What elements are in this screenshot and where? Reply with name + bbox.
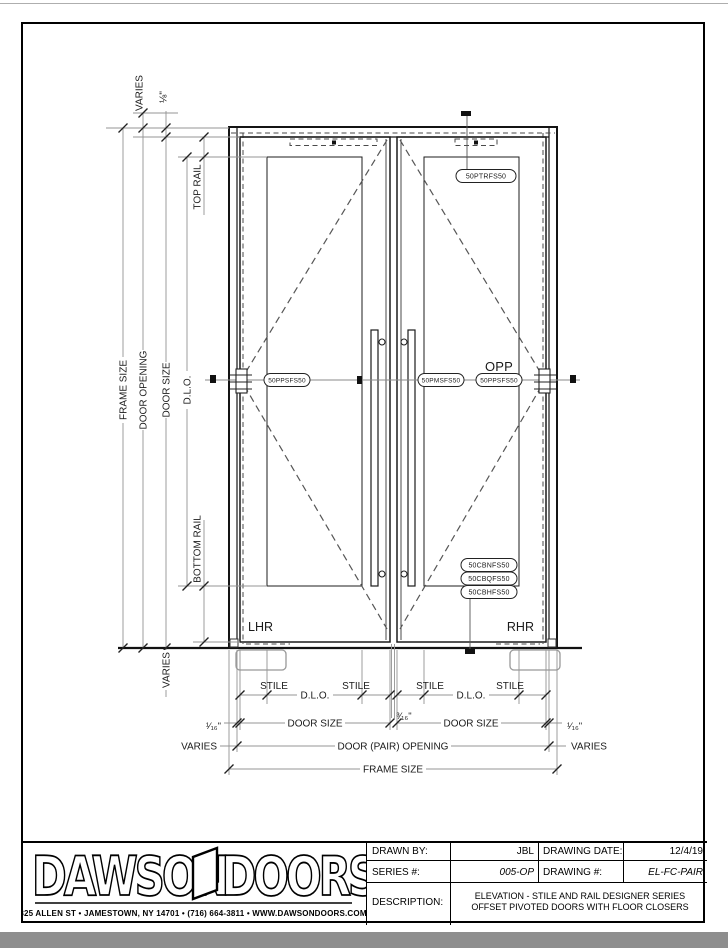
dim-door-size-left: DOOR SIZE — [287, 719, 342, 730]
dim-varies-top: VARIES — [135, 75, 146, 111]
part-top-rail: 50PTRFS50 — [466, 174, 506, 181]
dim-stile-4: STILE — [496, 681, 524, 692]
drawing-date-value: 12/4/19 — [629, 846, 703, 857]
opp-marker: OPP — [485, 359, 513, 374]
company-logo: DAWSON DOORS 825 ALLEN ST • JAMESTOWN, N… — [21, 843, 366, 927]
titleblock-row-rule — [366, 860, 707, 861]
dim-stile-2: STILE — [342, 681, 370, 692]
dim-floor-varies: VARIES — [162, 652, 173, 688]
company-address: 825 ALLEN ST • JAMESTOWN, NY 14701 • (71… — [21, 909, 366, 918]
drawing-date-label: DRAWING DATE: — [543, 846, 622, 857]
vertical-dim-labels: FRAME SIZE DOOR OPENING DOOR SIZE D.L.O.… — [119, 75, 204, 688]
part-floor-closer-2: 50CBQFS50 — [468, 576, 510, 583]
door-leaf-left — [240, 137, 390, 642]
part-floor-closer-1: 50CBNFS50 — [468, 563, 509, 570]
callout-marker-top — [461, 111, 471, 116]
extension-lines — [106, 111, 566, 775]
callout-marker-bottom — [465, 649, 475, 654]
titleblock-divider — [538, 841, 539, 882]
dim-dlo-left: D.L.O. — [301, 691, 330, 702]
part-meeting-stile: 50PMSFS50 — [422, 378, 461, 385]
drawing-no-label: DRAWING #: — [543, 867, 602, 878]
elevation-drawing: FRAME SIZE DOOR OPENING DOOR SIZE D.L.O.… — [0, 0, 728, 948]
dim-top-rail: TOP RAIL — [193, 164, 204, 210]
section-marker — [570, 375, 576, 383]
dim-varies-left: VARIES — [181, 742, 217, 753]
series-value: 005-OP — [454, 867, 534, 878]
drawing-sheet: FRAME SIZE DOOR OPENING DOOR SIZE D.L.O.… — [0, 0, 728, 948]
titleblock-divider — [623, 841, 624, 882]
part-callouts: 50PTRFS50 50PPSFS50 50PMSFS50 OPP 50PPSF… — [264, 170, 522, 599]
dim-edge-gap-right: ¹⁄₁₆" — [567, 721, 582, 732]
dim-door-pair-opening: DOOR (PAIR) OPENING — [338, 742, 449, 753]
dim-meeting-gap: ³⁄₁₆" — [396, 711, 411, 722]
title-block: DAWSON DOORS 825 ALLEN ST • JAMESTOWN, N… — [21, 841, 707, 925]
dim-stile-3: STILE — [416, 681, 444, 692]
dim-stile-1: STILE — [260, 681, 288, 692]
part-opp-pivot-stile: 50PPSFS50 — [480, 378, 518, 385]
part-pivot-stile: 50PPSFS50 — [268, 378, 306, 385]
dimension-ticks — [119, 109, 562, 774]
logo-word-doors: DOORS — [221, 846, 366, 908]
dim-edge-gap-left: ¹⁄₁₆" — [206, 721, 221, 732]
pull-handles — [371, 330, 415, 586]
part-floor-closer-3: 50CBHFS50 — [468, 590, 509, 597]
section-marker — [210, 375, 216, 383]
dim-door-size-v: DOOR SIZE — [162, 362, 173, 417]
dim-bottom-rail: BOTTOM RAIL — [193, 515, 204, 583]
dim-frame-size-v: FRAME SIZE — [119, 360, 130, 420]
handing-lhr: LHR — [248, 620, 273, 634]
drawing-no-value: EL-FC-PAIR — [629, 867, 703, 878]
dim-dlo-right: D.L.O. — [457, 691, 486, 702]
pivot-hardware-right — [534, 369, 556, 393]
titleblock-row-rule — [366, 882, 707, 883]
pivot-hardware-left — [230, 369, 252, 393]
dim-door-opening-v: DOOR OPENING — [139, 350, 150, 429]
dim-dlo-v: D.L.O. — [183, 376, 194, 405]
drawn-by-label: DRAWN BY: — [372, 846, 428, 857]
floor-closer-left — [236, 650, 286, 670]
bottom-pivot-left — [230, 639, 238, 647]
open-door-icon — [193, 848, 217, 899]
dim-head-gap: ⅛" — [159, 91, 170, 103]
series-label: SERIES #: — [372, 867, 420, 878]
head-prep-dot — [474, 141, 478, 145]
drawn-by-value: JBL — [454, 846, 534, 857]
dim-frame-size-h: FRAME SIZE — [363, 765, 423, 776]
handing-rhr: RHR — [507, 620, 534, 634]
bottom-gray-bar — [0, 932, 728, 948]
bottom-pivot-right — [548, 639, 556, 647]
description-label: DESCRIPTION: — [372, 897, 443, 908]
description-value: ELEVATION - STILE AND RAIL DESIGNER SERI… — [459, 891, 701, 913]
dim-text-backers — [117, 350, 501, 775]
section-marker — [357, 376, 362, 384]
floor-closer-right — [510, 650, 560, 670]
dim-varies-right: VARIES — [571, 742, 607, 753]
head-prep-dot — [332, 141, 336, 145]
dim-door-size-right: DOOR SIZE — [443, 719, 498, 730]
